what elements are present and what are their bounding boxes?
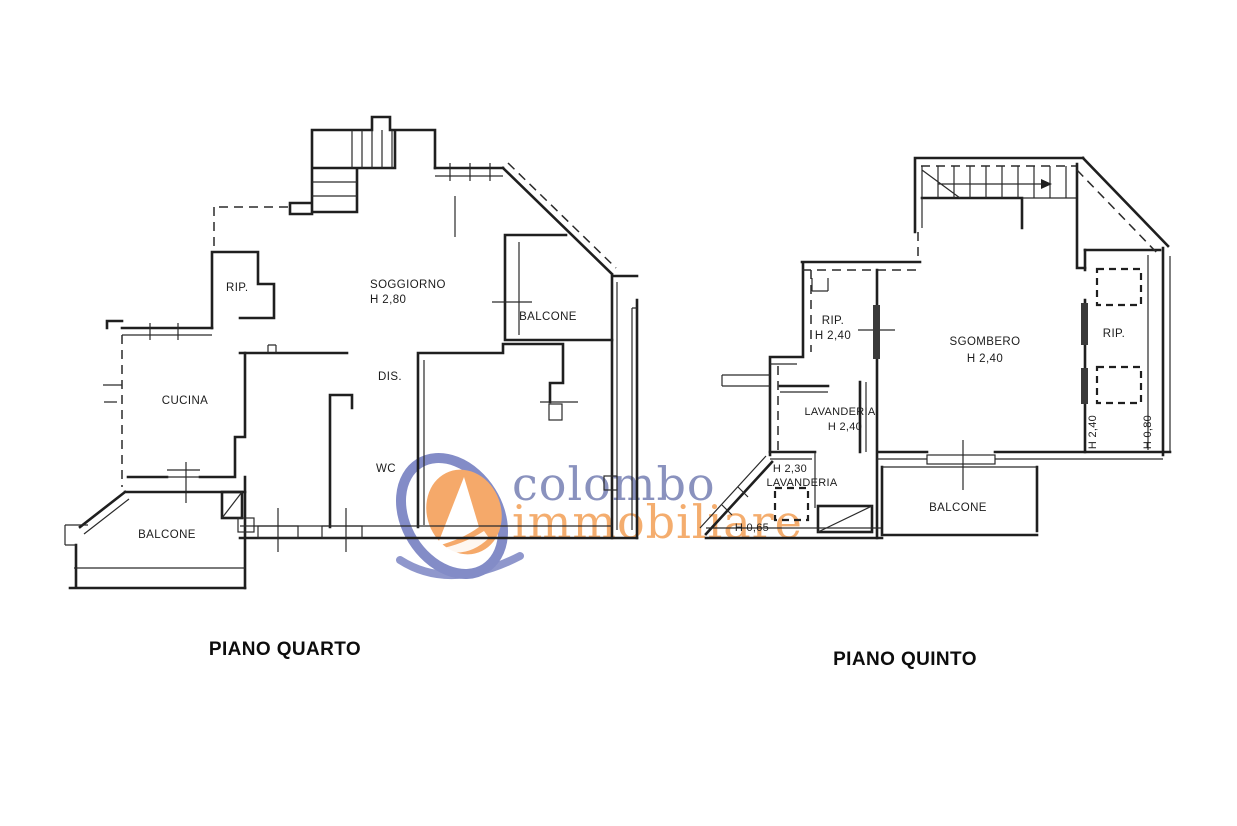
room-label-soggiorno: SOGGIORNO — [370, 279, 446, 291]
label-h065: H 0,65 — [735, 522, 769, 534]
room-label-balcone-quinto: BALCONE — [929, 502, 987, 514]
room-label-cucina: CUCINA — [162, 395, 209, 407]
rip-right-cabinet-2 — [1097, 367, 1141, 403]
outer-walls-right-quinto — [1077, 158, 1170, 455]
room-label-lavanderia2: LAVANDERIA — [766, 477, 837, 489]
agency-logo-icon — [380, 439, 524, 593]
room-label-rip-left-height: H 2,40 — [815, 330, 851, 342]
room-label-rip-left: RIP. — [822, 315, 844, 327]
room-label-soggiorno-height: H 2,80 — [370, 294, 406, 306]
room-balcone-right — [492, 235, 612, 340]
room-label-rip: RIP. — [226, 282, 248, 294]
room-cucina — [103, 321, 245, 588]
outer-walls-top-left — [722, 262, 920, 455]
plan-title-quinto: PIANO QUINTO — [833, 649, 977, 670]
room-label-lavanderia: LAVANDERIA — [804, 406, 875, 418]
room-sgombero — [858, 270, 1085, 538]
room-rip — [212, 207, 288, 328]
staircase-quinto — [915, 158, 1083, 262]
room-label-balcone-left: BALCONE — [138, 529, 196, 541]
shaft-hatch — [222, 492, 242, 518]
outer-walls-top — [435, 163, 616, 274]
room-label-dis: DIS. — [378, 371, 402, 383]
plan-title-quarto: PIANO QUARTO — [209, 639, 361, 660]
room-label-sgombero-height: H 2,40 — [967, 353, 1003, 365]
room-label-lavanderia-height: H 2,40 — [828, 421, 862, 433]
room-balcone-quinto — [882, 467, 1037, 535]
room-label-rip-right: RIP. — [1103, 328, 1125, 340]
label-h080-vertical: H 0,80 — [1142, 415, 1154, 449]
floorplan-page: colombo immobiliare — [0, 0, 1237, 826]
room-label-sgombero: SGOMBERO — [950, 336, 1021, 348]
room-label-lavanderia2-height: H 2,30 — [773, 463, 807, 475]
room-label-wc: WC — [376, 463, 396, 475]
staircase — [290, 117, 455, 237]
floor-plan-quinto: RIP. H 2,40 SGOMBERO H 2,40 RIP. LAVANDE… — [700, 158, 1170, 670]
floorplan-drawing: colombo immobiliare — [0, 0, 1237, 826]
label-h240-vertical: H 2,40 — [1087, 415, 1099, 449]
room-label-balcone-right: BALCONE — [519, 311, 577, 323]
floor-plan-quarto: RIP. SOGGIORNO H 2,80 BALCONE CUCINA DIS… — [65, 117, 637, 660]
watermark: colombo immobiliare — [380, 439, 803, 593]
rip-right-cabinet-1 — [1097, 269, 1141, 305]
